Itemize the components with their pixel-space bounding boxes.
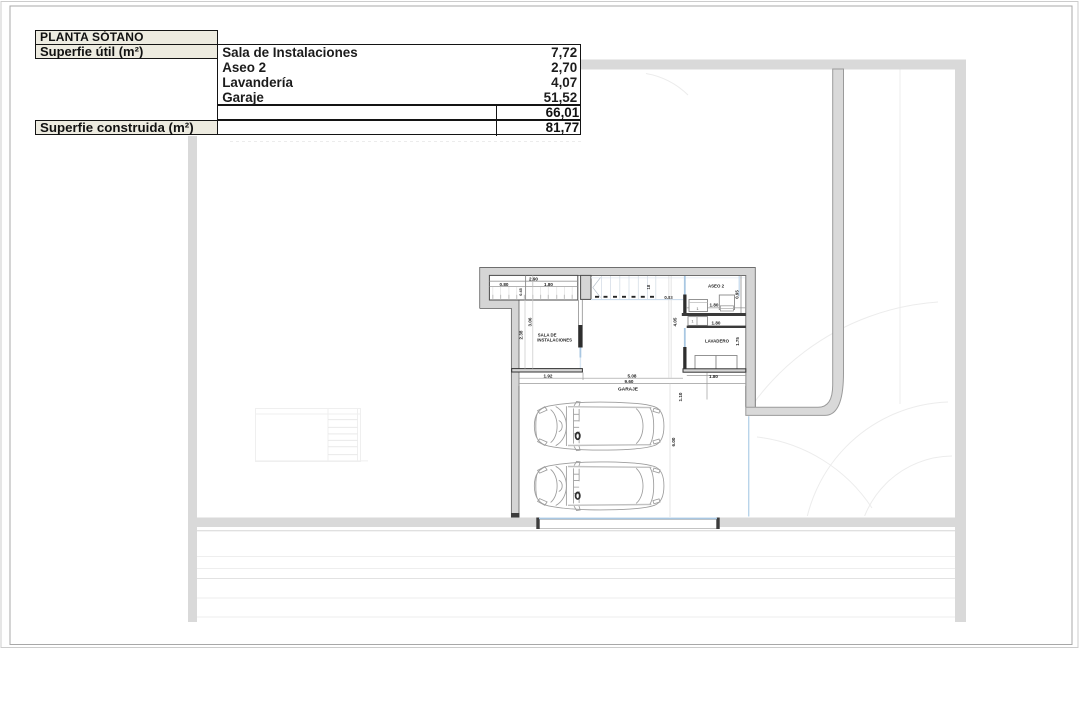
svg-text:1.80: 1.80 <box>709 374 718 379</box>
svg-text:1.10: 1.10 <box>678 392 683 401</box>
svg-text:1.80: 1.80 <box>712 320 721 325</box>
svg-text:LAVADERO: LAVADERO <box>705 338 730 343</box>
svg-text:1.80: 1.80 <box>710 302 719 307</box>
svg-text:9.60: 9.60 <box>625 379 634 384</box>
svg-text:1.75: 1.75 <box>735 337 740 346</box>
svg-text:GARAJE: GARAJE <box>618 386 639 392</box>
svg-text:1.80: 1.80 <box>544 282 553 287</box>
svg-text:3.06: 3.06 <box>528 317 533 326</box>
svg-text:0.80: 0.80 <box>500 282 509 287</box>
svg-text:1.92: 1.92 <box>544 374 553 379</box>
svg-text:6.00: 6.00 <box>671 437 676 446</box>
svg-text:2.38: 2.38 <box>518 330 523 339</box>
svg-text:18: 18 <box>646 284 651 289</box>
svg-text:0.45: 0.45 <box>519 288 523 295</box>
svg-text:4.05: 4.05 <box>673 317 678 326</box>
svg-text:ASEO 2: ASEO 2 <box>708 283 725 288</box>
svg-text:INSTALACIONES: INSTALACIONES <box>537 338 572 343</box>
svg-text:0.95: 0.95 <box>735 290 740 299</box>
svg-text:2.90: 2.90 <box>529 277 538 282</box>
